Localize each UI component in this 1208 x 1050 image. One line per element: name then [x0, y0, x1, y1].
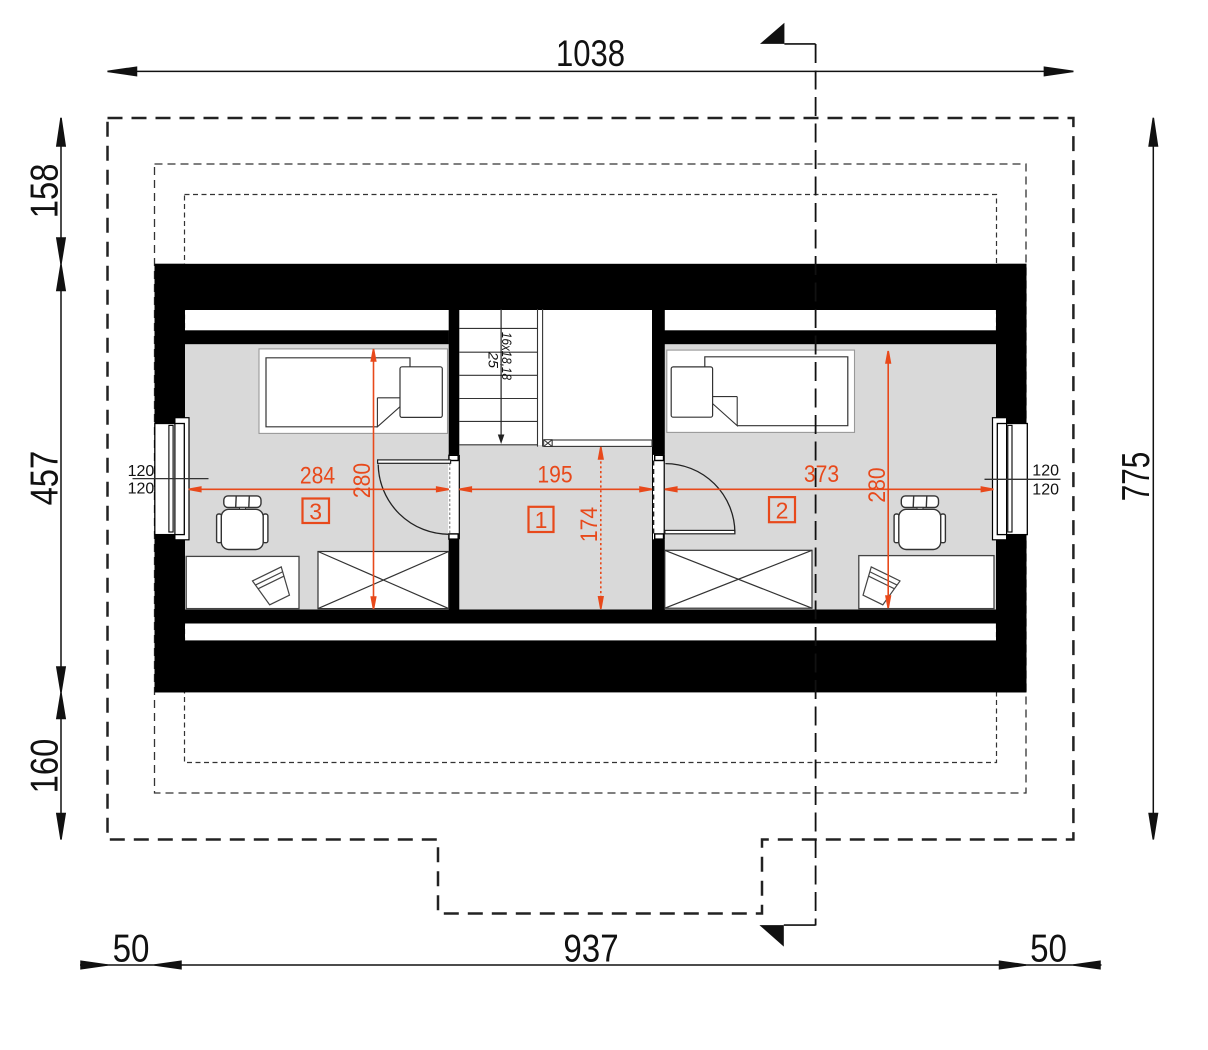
svg-text:280: 280	[349, 463, 376, 498]
svg-text:373: 373	[804, 461, 839, 488]
svg-text:2: 2	[776, 498, 789, 524]
svg-text:937: 937	[563, 926, 618, 970]
svg-text:120: 120	[128, 463, 155, 480]
svg-text:280: 280	[864, 467, 891, 502]
svg-text:195: 195	[537, 461, 572, 488]
svg-text:3: 3	[309, 499, 322, 525]
svg-text:1: 1	[535, 507, 548, 533]
svg-text:50: 50	[113, 926, 150, 970]
svg-text:284: 284	[300, 462, 335, 489]
svg-text:775: 775	[1115, 452, 1158, 501]
svg-text:1038: 1038	[556, 34, 625, 75]
svg-text:120: 120	[1032, 482, 1059, 499]
svg-text:120: 120	[1032, 463, 1059, 480]
svg-text:50: 50	[1030, 926, 1067, 970]
svg-text:160: 160	[22, 739, 66, 794]
svg-text:25: 25	[486, 351, 502, 368]
svg-text:120: 120	[128, 481, 155, 498]
svg-text:457: 457	[22, 451, 66, 506]
svg-text:158: 158	[22, 164, 66, 219]
svg-text:174: 174	[576, 507, 603, 542]
